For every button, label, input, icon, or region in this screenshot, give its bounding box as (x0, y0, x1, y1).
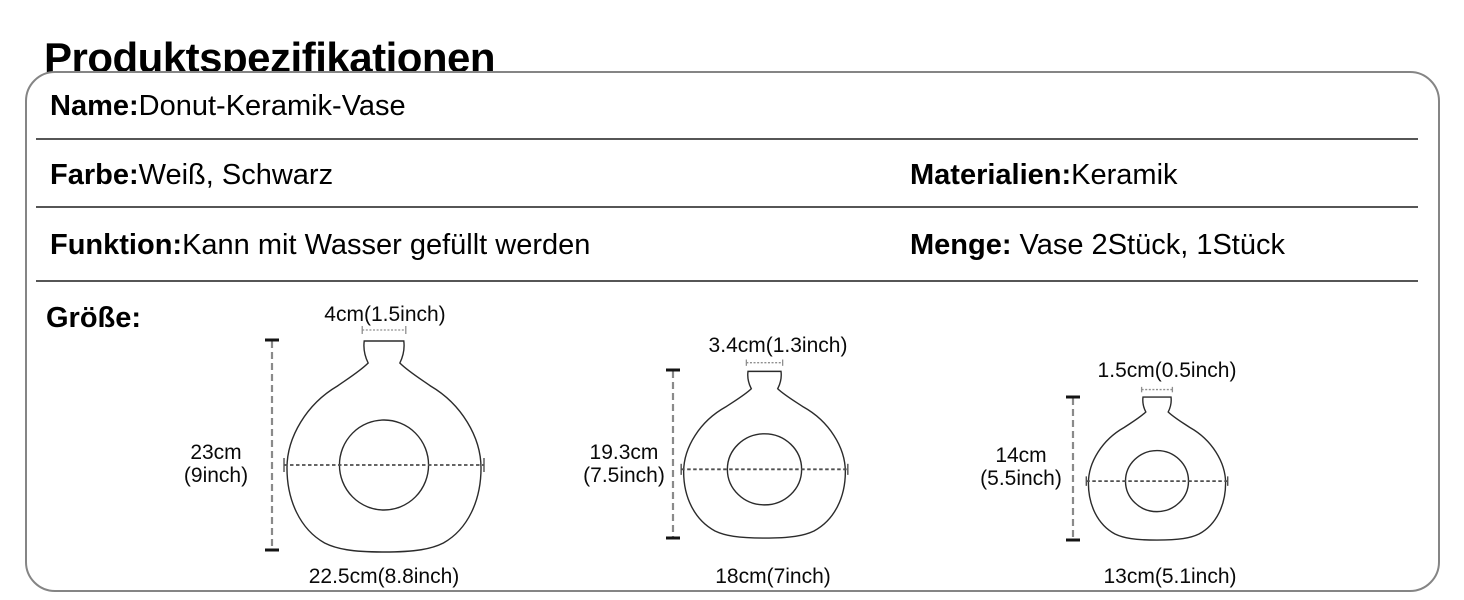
color-label: Farbe: (50, 159, 139, 191)
function-label: Funktion: (50, 229, 182, 261)
medium-vase-height-label: 19.3cm (7.5inch) (583, 441, 665, 487)
large-vase-height-measure (265, 340, 279, 550)
row-divider (36, 138, 1418, 140)
small-vase-top-width-label: 1.5cm(0.5inch) (1098, 359, 1237, 382)
medium-vase-height-inch: (7.5inch) (583, 464, 665, 487)
small-vase-drawing (1086, 387, 1227, 540)
large-vase-height-cm: 23cm (184, 441, 248, 464)
small-vase-height-measure (1066, 397, 1080, 540)
small-vase-height-label: 14cm (5.5inch) (980, 444, 1062, 490)
large-vase-bottom-width-label: 22.5cm(8.8inch) (309, 565, 460, 588)
medium-vase-height-measure (666, 370, 680, 538)
material-value: Keramik (1071, 159, 1177, 191)
medium-vase-bottom-width-label: 18cm(7inch) (715, 565, 831, 588)
medium-vase-top-width-label: 3.4cm(1.3inch) (709, 334, 848, 357)
spec-row-color: Farbe:Weiß, Schwarz (50, 159, 333, 191)
material-label: Materialien: (910, 159, 1071, 191)
medium-vase-drawing (681, 360, 848, 539)
small-vase-height-inch: (5.5inch) (980, 467, 1062, 490)
color-value: Weiß, Schwarz (139, 159, 333, 191)
spec-row-material: Materialien:Keramik (910, 159, 1178, 191)
large-vase-drawing (284, 326, 484, 552)
large-vase-height-label: 23cm (9inch) (184, 441, 248, 487)
small-vase-height-cm: 14cm (980, 444, 1062, 467)
large-vase-height-inch: (9inch) (184, 464, 248, 487)
quantity-label: Menge: (910, 229, 1012, 261)
row-divider (36, 206, 1418, 208)
spec-row-quantity: Menge: Vase 2Stück, 1Stück (910, 229, 1285, 261)
spec-row-name: Name:Donut-Keramik-Vase (50, 90, 406, 122)
function-value: Kann mit Wasser gefüllt werden (182, 229, 590, 261)
medium-vase-height-cm: 19.3cm (583, 441, 665, 464)
large-vase-top-width-label: 4cm(1.5inch) (324, 303, 445, 326)
spec-row-function: Funktion:Kann mit Wasser gefüllt werden (50, 229, 590, 261)
name-label: Name: (50, 90, 139, 122)
name-value: Donut-Keramik-Vase (139, 90, 406, 122)
small-vase-bottom-width-label: 13cm(5.1inch) (1103, 565, 1236, 588)
quantity-value: Vase 2Stück, 1Stück (1012, 229, 1286, 261)
